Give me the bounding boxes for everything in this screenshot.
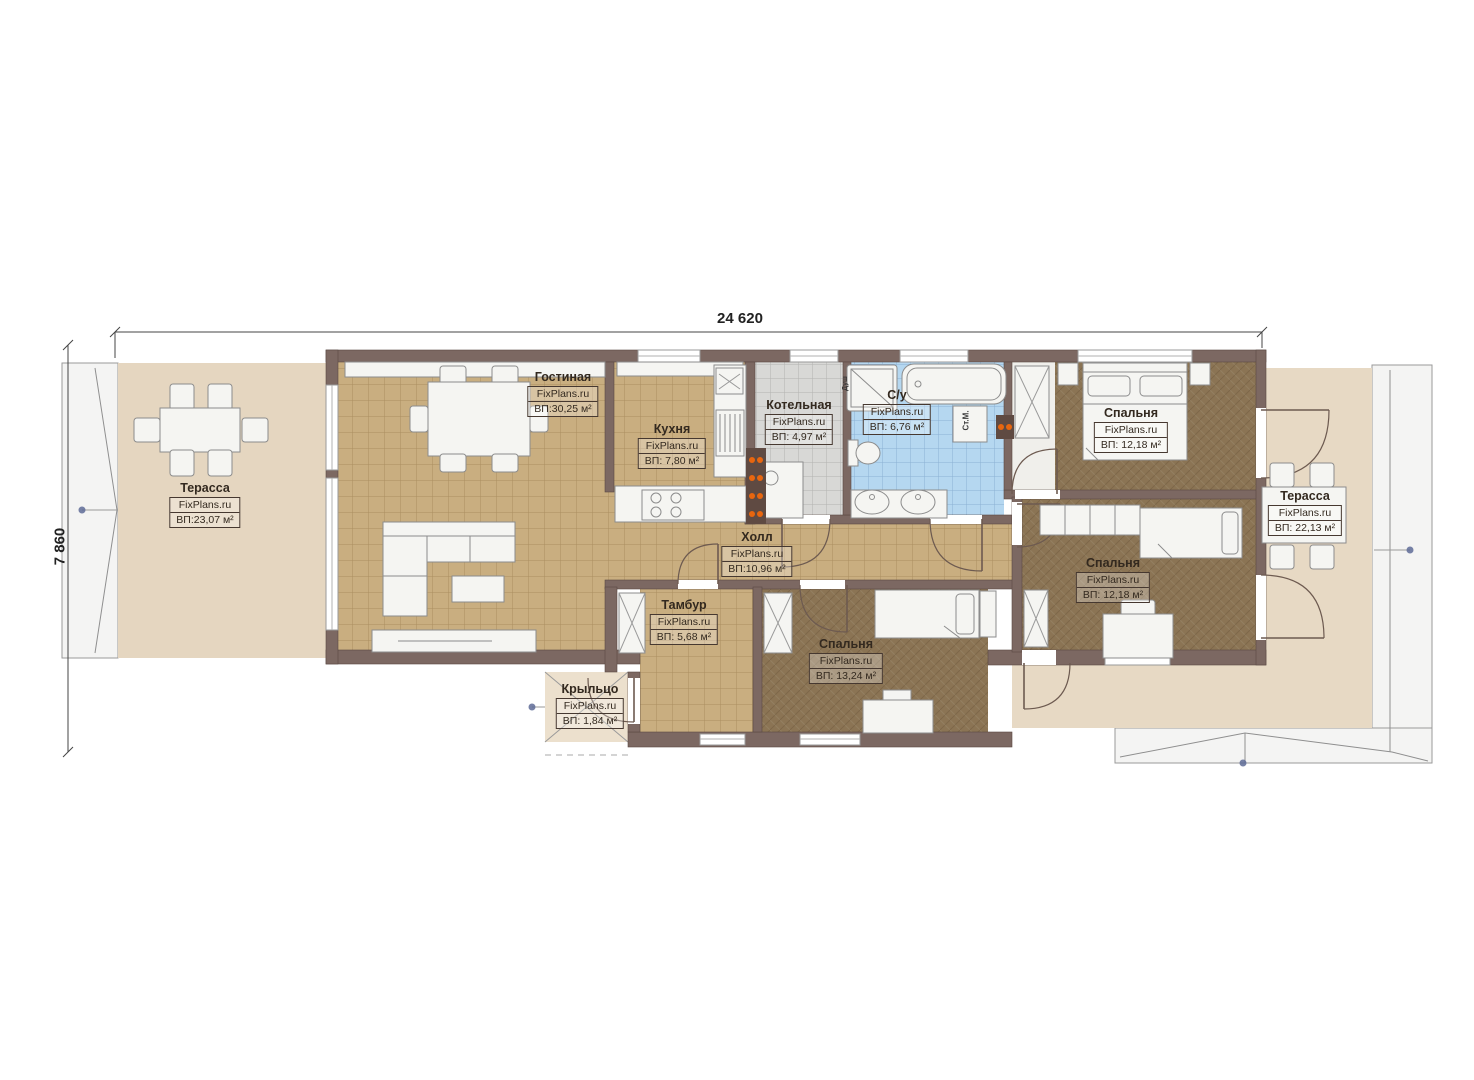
room-site: FixPlans.ru xyxy=(864,405,930,420)
room-label-living-room: Гостиная FixPlans.ru ВП:30,25 м² xyxy=(527,370,598,417)
room-name: Гостиная xyxy=(527,370,598,385)
room-label-bedroom-bottom: Спальня FixPlans.ru ВП: 13,24 м² xyxy=(809,637,883,684)
room-label-hall: Холл FixPlans.ru ВП:10,96 м² xyxy=(721,530,792,577)
room-name: Терасса xyxy=(169,481,240,496)
room-name: Терасса xyxy=(1268,489,1342,504)
room-label-bedroom-mid-right: Спальня FixPlans.ru ВП: 12,18 м² xyxy=(1076,556,1150,603)
dimension-width-label: 24 620 xyxy=(640,310,840,327)
room-name: Спальня xyxy=(809,637,883,652)
room-name: Котельная xyxy=(765,398,833,413)
room-name: Холл xyxy=(721,530,792,545)
room-label-porch: Крыльцо FixPlans.ru ВП: 1,84 м² xyxy=(556,682,624,729)
room-site: FixPlans.ru xyxy=(766,415,832,430)
room-area: ВП: 5,68 м² xyxy=(651,630,717,644)
room-name: Спальня xyxy=(1094,406,1168,421)
room-area: ВП: 12,18 м² xyxy=(1077,588,1149,602)
room-site: FixPlans.ru xyxy=(810,654,882,669)
room-label-bedroom-top-right: Спальня FixPlans.ru ВП: 12,18 м² xyxy=(1094,406,1168,453)
room-name: Крыльцо xyxy=(556,682,624,697)
room-label-terrace-right: Терасса FixPlans.ru ВП: 22,13 м² xyxy=(1268,489,1342,536)
room-label-boiler-room: Котельная FixPlans.ru ВП: 4,97 м² xyxy=(765,398,833,445)
room-area: ВП: 12,18 м² xyxy=(1095,438,1167,452)
room-area: ВП:30,25 м² xyxy=(528,402,597,416)
room-site: FixPlans.ru xyxy=(528,387,597,402)
room-label-terrace-left: Терасса FixPlans.ru ВП:23,07 м² xyxy=(169,481,240,528)
room-area: ВП: 1,84 м² xyxy=(557,714,623,728)
room-site: FixPlans.ru xyxy=(1077,573,1149,588)
dimension-height-label: 7 860 xyxy=(52,517,69,577)
room-name: Кухня xyxy=(638,422,706,437)
room-site: FixPlans.ru xyxy=(722,547,791,562)
room-site: FixPlans.ru xyxy=(1095,423,1167,438)
shower-label: Душ xyxy=(842,376,849,391)
room-site: FixPlans.ru xyxy=(170,498,239,513)
room-site: FixPlans.ru xyxy=(639,439,705,454)
room-site: FixPlans.ru xyxy=(557,699,623,714)
room-name: Тамбур xyxy=(650,598,718,613)
room-area: ВП:10,96 м² xyxy=(722,562,791,576)
room-name: С/у xyxy=(863,388,931,403)
room-area: ВП: 6,76 м² xyxy=(864,420,930,434)
room-area: ВП: 7,80 м² xyxy=(639,454,705,468)
room-name: Спальня xyxy=(1076,556,1150,571)
room-area: ВП: 13,24 м² xyxy=(810,669,882,683)
room-area: ВП:23,07 м² xyxy=(170,513,239,527)
room-site: FixPlans.ru xyxy=(1269,506,1341,521)
floor-plan: 24 620 7 860 Терасса FixPlans.ru ВП:23,0… xyxy=(0,0,1474,1080)
room-site: FixPlans.ru xyxy=(651,615,717,630)
room-label-kitchen: Кухня FixPlans.ru ВП: 7,80 м² xyxy=(638,422,706,469)
washing-machine-label: Ст.М. xyxy=(962,410,971,430)
room-area: ВП: 4,97 м² xyxy=(766,430,832,444)
room-area: ВП: 22,13 м² xyxy=(1269,521,1341,535)
room-label-vestibule: Тамбур FixPlans.ru ВП: 5,68 м² xyxy=(650,598,718,645)
room-label-bathroom: С/у FixPlans.ru ВП: 6,76 м² xyxy=(863,388,931,435)
